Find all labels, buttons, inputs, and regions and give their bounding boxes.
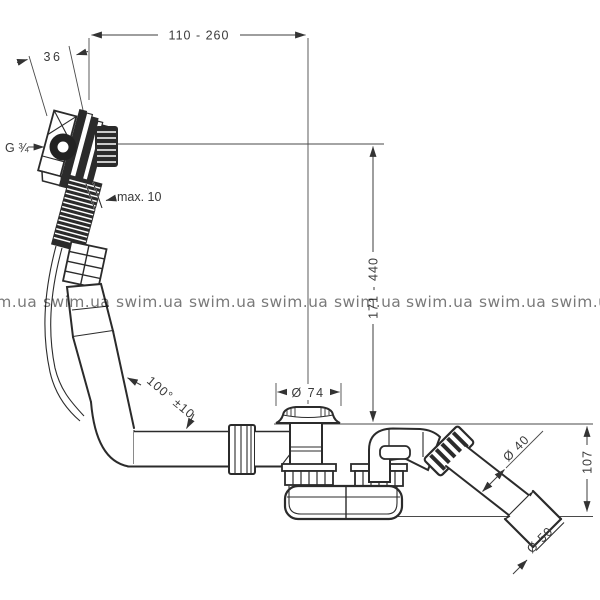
watermark-text: swim.ua	[43, 293, 110, 311]
dim-top-width: 110 - 260	[169, 29, 230, 43]
watermark-text: swim.ua	[551, 293, 600, 311]
label-wall-max: max. 10	[117, 190, 162, 204]
bathtub-waste-overflow-drawing: 110 - 260 36 G ¾ max. 10 171 - 440 Ø 74 …	[0, 0, 600, 600]
dim-hose-angle: 100° ±10	[144, 374, 198, 422]
drain-flange	[276, 407, 340, 423]
fixture	[36, 103, 564, 551]
threaded-boss	[95, 126, 118, 167]
watermark-text: swim.ua	[116, 293, 183, 311]
watermark-text: swim.ua	[261, 293, 328, 311]
dim-pipe-diameter: Ø 40	[500, 432, 532, 464]
knob-center	[58, 142, 69, 153]
telescopic-section	[63, 242, 107, 289]
watermark-text: swim.ua	[189, 293, 256, 311]
dim-plate-offset: 36	[44, 50, 63, 64]
pipe-union-nut	[229, 425, 255, 474]
technical-drawing-page: 110 - 260 36 G ¾ max. 10 171 - 440 Ø 74 …	[0, 0, 600, 600]
dim-outlet-drop: 107	[581, 450, 595, 474]
watermark-text: swim.ua	[334, 293, 401, 311]
label-thread-size: G ¾	[5, 141, 29, 155]
waste-tee	[255, 424, 322, 467]
watermark-text: swim.ua	[479, 293, 546, 311]
overflow-pipe	[67, 284, 230, 467]
dim-flange-diameter: Ø 74	[291, 386, 324, 400]
watermark-row: swim.ua swim.ua swim.ua swim.ua swim.ua …	[0, 293, 600, 311]
watermark-text: swim.ua	[0, 293, 37, 311]
watermark-text: swim.ua	[406, 293, 473, 311]
